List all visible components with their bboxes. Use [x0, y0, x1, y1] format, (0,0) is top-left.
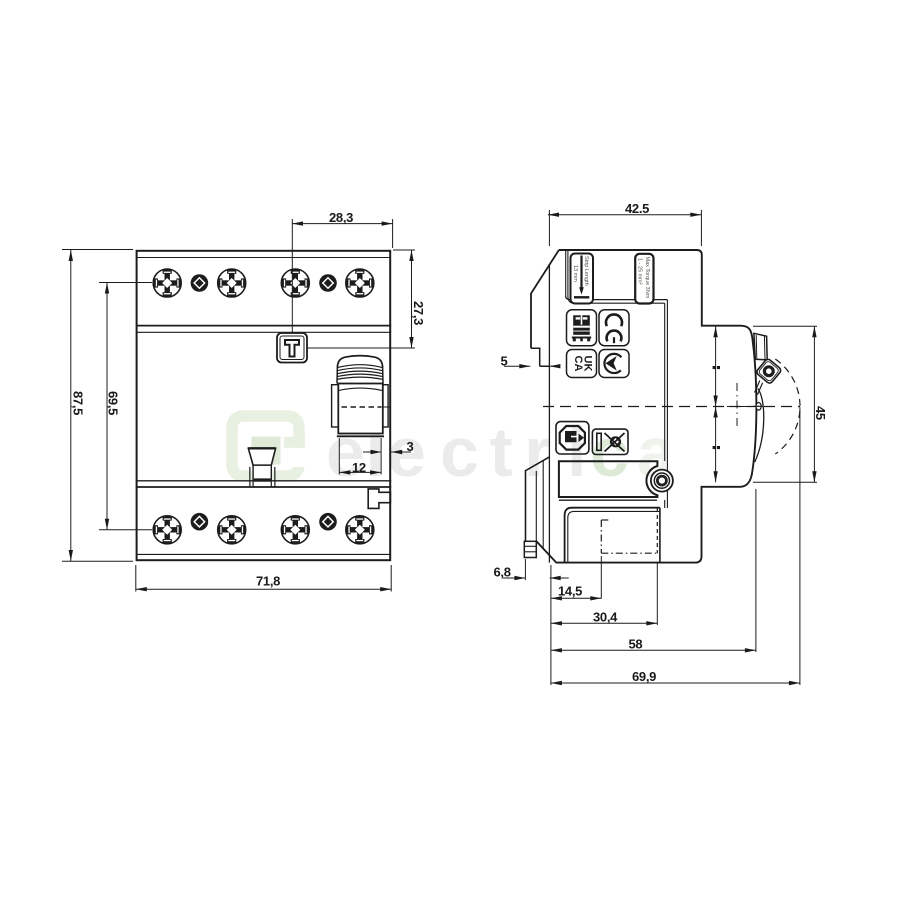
- svg-text:45: 45: [813, 406, 828, 420]
- svg-text:t: t: [490, 413, 520, 491]
- svg-text:Strip Length: Strip Length: [583, 256, 589, 286]
- svg-text:27,3: 27,3: [411, 301, 426, 325]
- svg-text:69,9: 69,9: [632, 669, 656, 684]
- svg-text:42.5: 42.5: [625, 201, 649, 216]
- svg-text:69,5: 69,5: [106, 391, 121, 415]
- svg-text:Max Torque 3Nm: Max Torque 3Nm: [644, 257, 650, 299]
- svg-text:30,4: 30,4: [593, 610, 618, 625]
- svg-text:13 mm: 13 mm: [572, 265, 578, 282]
- svg-text:87,5: 87,5: [71, 391, 86, 415]
- svg-text:28,3: 28,3: [329, 210, 353, 225]
- svg-text:c: c: [590, 413, 636, 491]
- svg-text:14,5: 14,5: [558, 584, 582, 599]
- svg-text:1 - 25 mm²: 1 - 25 mm²: [637, 258, 643, 285]
- svg-text:3: 3: [407, 439, 414, 454]
- svg-text:r: r: [524, 413, 558, 491]
- svg-text:71,8: 71,8: [256, 574, 280, 589]
- svg-text:CA: CA: [572, 356, 584, 372]
- svg-text:58: 58: [629, 637, 643, 652]
- svg-text:6,8: 6,8: [494, 565, 511, 580]
- svg-text:5: 5: [501, 354, 508, 369]
- svg-text:12: 12: [352, 460, 366, 475]
- svg-text:c: c: [440, 413, 486, 491]
